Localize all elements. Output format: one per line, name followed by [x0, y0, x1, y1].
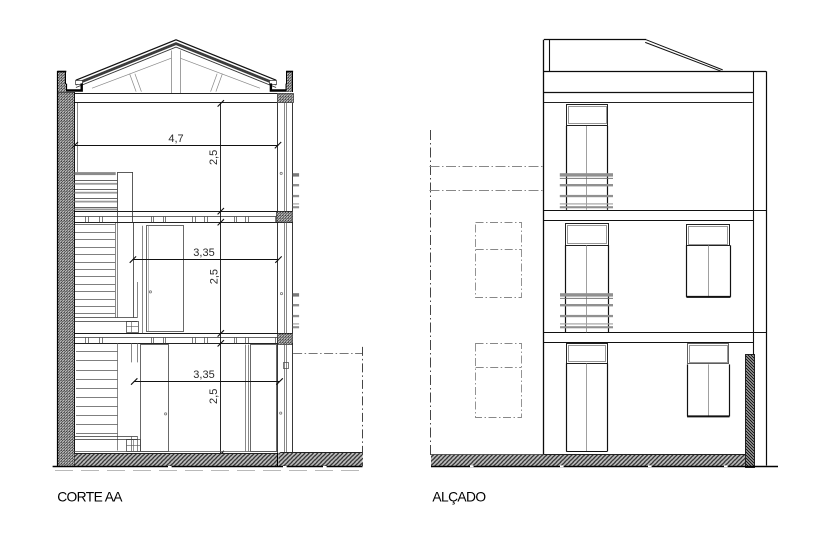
svg-text:2,5: 2,5 [208, 150, 220, 165]
svg-text:4,7: 4,7 [168, 133, 183, 145]
svg-text:ALÇADO: ALÇADO [432, 490, 486, 505]
svg-text:2,5: 2,5 [208, 389, 220, 404]
svg-text:CORTE AA: CORTE AA [57, 490, 123, 505]
svg-text:3,35: 3,35 [193, 369, 214, 381]
svg-text:2,5: 2,5 [209, 269, 221, 284]
svg-text:3,35: 3,35 [193, 247, 214, 259]
